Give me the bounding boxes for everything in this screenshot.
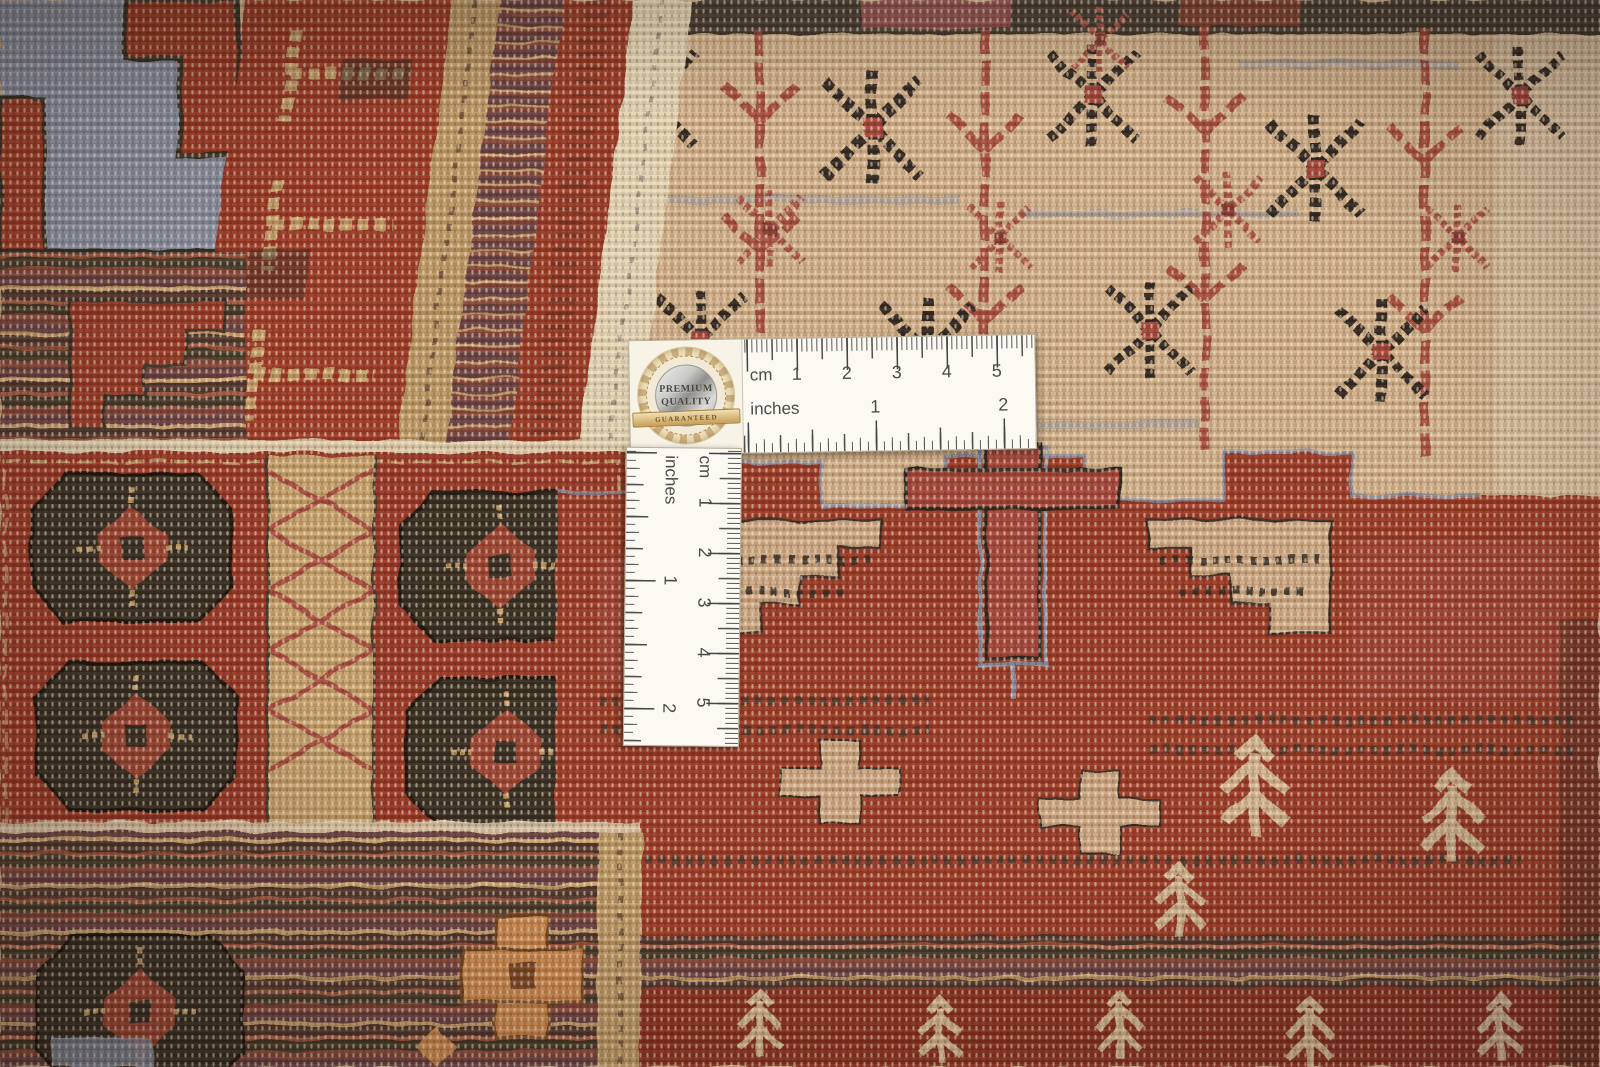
cm-number: 2 (696, 548, 714, 558)
badge-quality-text: QUALITY (661, 396, 711, 408)
cm-number: 3 (695, 598, 713, 608)
vertical-ruler-scale: cm 1 2 3 4 5 inches 1 2 (624, 448, 741, 746)
badge-premium-text: PREMIUM (659, 383, 713, 395)
inch-number: 1 (870, 397, 880, 415)
cm-number: 5 (694, 698, 712, 708)
cm-label: cm (697, 456, 714, 479)
cm-number: 5 (992, 362, 1002, 380)
inch-tick-marks (624, 448, 657, 745)
premium-quality-badge: PREMIUM QUALITY GUARANTEED (629, 340, 744, 455)
badge-guaranteed-text: GUARANTEED (655, 413, 718, 424)
inch-number: 2 (998, 395, 1008, 413)
horizontal-ruler: PREMIUM QUALITY GUARANTEED cm 1 2 3 4 5 (628, 334, 1037, 455)
cm-label: cm (750, 366, 773, 383)
rug-photo: PREMIUM QUALITY GUARANTEED cm 1 2 3 4 5 (0, 0, 1600, 1067)
cm-number: 2 (842, 364, 852, 382)
inches-label: inches (662, 455, 680, 504)
inch-number: 2 (660, 703, 678, 713)
cm-number: 3 (892, 363, 902, 381)
horizontal-ruler-scale: cm 1 2 3 4 5 inches 1 2 (742, 335, 1036, 453)
badge-guaranteed-banner: GUARANTEED (632, 408, 741, 428)
rug-weave-background (0, 0, 1600, 1067)
inch-tick-marks (744, 418, 1036, 453)
inch-number: 1 (662, 575, 680, 585)
cm-number: 4 (695, 648, 713, 658)
quality-seal: PREMIUM QUALITY GUARANTEED (634, 345, 738, 450)
vertical-ruler: cm 1 2 3 4 5 inches 1 2 (623, 447, 742, 747)
cm-number: 1 (696, 498, 714, 508)
weave-texture (0, 0, 1600, 1067)
cm-number: 1 (792, 365, 802, 383)
inches-label: inches (750, 400, 799, 418)
cm-number: 4 (942, 362, 952, 380)
